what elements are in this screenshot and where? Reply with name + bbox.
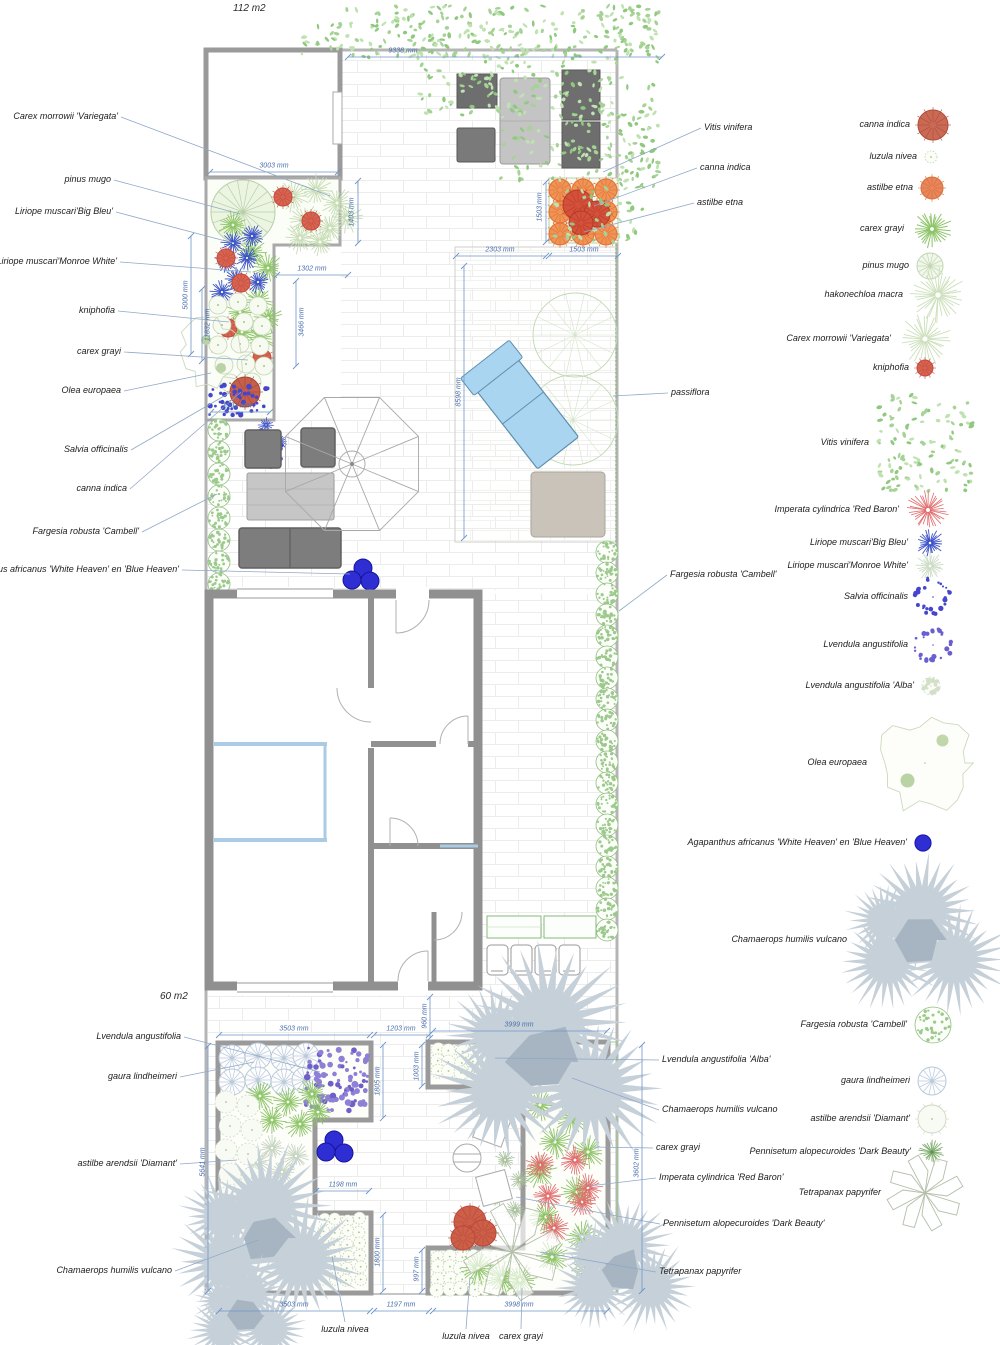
luzula-circle-icon	[430, 1283, 444, 1297]
legend-symbol-salvia	[913, 577, 952, 616]
luzula-circle-icon	[329, 1213, 341, 1225]
filled-circle-plant-icon	[915, 107, 951, 143]
speckle-circle-plant-icon	[915, 1007, 951, 1043]
pinwheel-tetrapanax-icon	[887, 1155, 963, 1231]
starburst-plant-icon	[907, 490, 949, 527]
speckle-circle-plant-icon	[208, 441, 230, 463]
legend-symbol-luzula	[925, 151, 937, 163]
speckle-circle-plant-icon	[596, 835, 618, 857]
legend-symbol-palm	[841, 852, 1000, 1017]
starburst-plant-icon	[915, 552, 943, 578]
starburst-plant-icon	[902, 314, 951, 364]
legend-symbol-liriope_white	[915, 552, 943, 578]
speckle-circle-plant-icon	[596, 793, 618, 815]
speckle-circle-plant-icon	[596, 625, 618, 647]
starburst-plant-icon	[915, 213, 951, 248]
plan-svg	[0, 0, 1000, 1345]
legend-symbol-astilbe_diamant	[915, 1102, 949, 1136]
garden-plan-canvas: 112 m2 60 m2 9338 mm3003 mm1403 mm1302 m…	[0, 0, 1000, 1345]
luzula-circle-icon	[353, 1212, 365, 1224]
speckle-circle-plant-icon	[596, 541, 619, 563]
luzula-circle-icon	[355, 1261, 367, 1273]
speckle-circle-plant-icon	[595, 646, 618, 668]
spoke-circle-plant-icon	[918, 1067, 946, 1095]
dot-ring-plant-icon	[913, 577, 952, 616]
luzula-circle-icon	[925, 151, 937, 163]
spoke-circle-plant-icon	[211, 180, 275, 244]
filled-circle-plant-icon	[914, 357, 936, 379]
legend-symbol-olea	[881, 717, 974, 811]
speckle-circle-plant-icon	[596, 688, 618, 710]
legend-symbol-lavender	[914, 627, 953, 662]
vine-leaves-icon	[876, 392, 976, 493]
legend-symbol-imperata	[907, 490, 949, 527]
legend-symbol-canna	[915, 107, 951, 143]
speckle-circle-plant-icon	[596, 583, 618, 605]
speckle-circle-plant-icon	[596, 709, 618, 731]
speckle-circle-plant-icon	[596, 562, 618, 584]
shed	[206, 50, 342, 178]
area-label-top: 112 m2	[233, 3, 266, 14]
speckle-circle-plant-icon	[596, 667, 618, 689]
luzula-circle-icon	[342, 1225, 354, 1237]
filled-circle-plant-icon	[918, 174, 946, 202]
legend-symbol-lavender_alba	[921, 677, 940, 695]
house-floorplan	[209, 587, 478, 994]
luzula-circle-icon	[354, 1237, 366, 1249]
dot-ring-plant-icon	[914, 627, 953, 662]
vine-leaves-icon	[336, 3, 660, 60]
palm-chamaerops-icon	[841, 852, 1000, 1017]
blob-outline-plant-icon	[881, 717, 974, 811]
speckle-circle-plant-icon	[596, 730, 618, 752]
luzula-circle-icon	[355, 1273, 367, 1285]
legend-symbol-carex_morrowii	[902, 314, 951, 364]
speckle-circle-plant-icon	[596, 814, 618, 836]
speckle-circle-plant-icon	[208, 529, 230, 551]
luzula-circle-icon	[353, 1226, 365, 1238]
legend-symbol-fargesia	[915, 1007, 951, 1043]
speckle-circle-plant-icon	[596, 604, 618, 626]
legend-symbol-carex_grayi	[915, 213, 951, 248]
speckle-circle-plant-icon	[208, 507, 230, 529]
area-label-bottom: 60 m2	[160, 991, 188, 1002]
luzula-circle-icon	[454, 1281, 468, 1295]
spoke-circle-plant-icon	[219, 1045, 245, 1071]
speckle-circle-plant-icon	[208, 551, 230, 573]
speckle-circle-plant-icon	[596, 877, 618, 899]
speckle-circle-plant-icon	[596, 919, 618, 941]
legend-symbol-astilbe_etna	[918, 174, 946, 202]
speckle-circle-plant-icon	[596, 897, 618, 920]
speckle-circle-plant-icon	[596, 751, 618, 773]
legend-symbol-gaura	[918, 1067, 946, 1095]
speckle-circle-plant-icon	[208, 463, 230, 485]
legend-symbol-kniphofia	[914, 357, 936, 379]
speckle-circle-plant-icon	[596, 772, 618, 794]
legend-layer	[841, 107, 1000, 1231]
speckle-circle-plant-icon	[208, 419, 230, 441]
legend-symbol-agapanthus	[915, 835, 931, 851]
speckle-circle-plant-icon	[596, 856, 618, 878]
legend-symbol-tetrapanax	[887, 1155, 963, 1231]
legend-symbol-vitis	[876, 392, 976, 493]
